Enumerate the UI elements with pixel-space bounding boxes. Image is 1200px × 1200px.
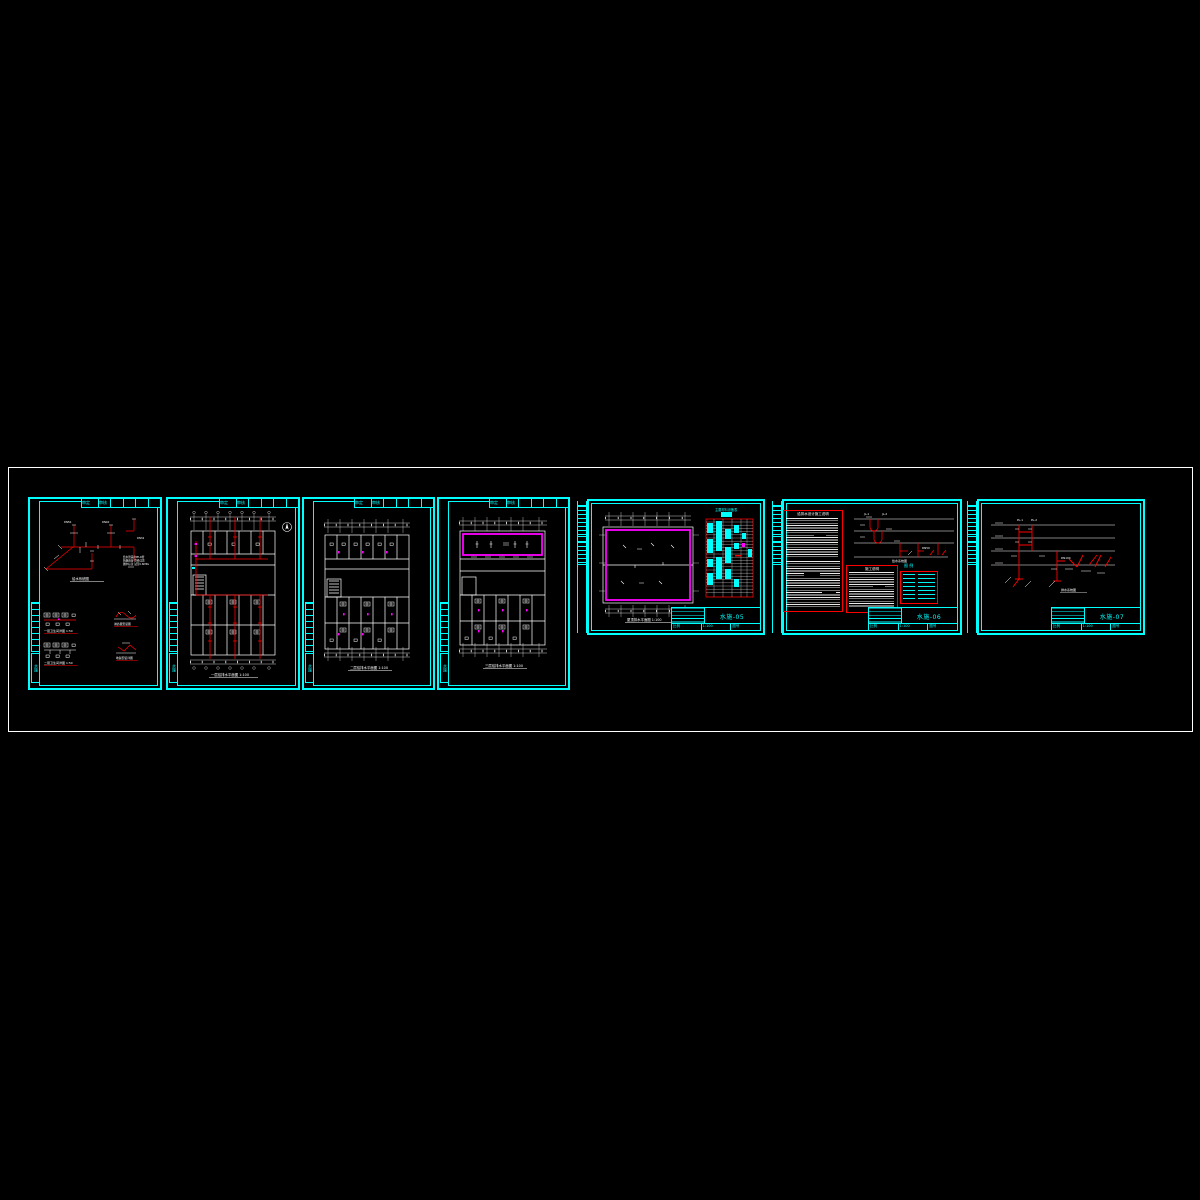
svg-text:DN50: DN50	[64, 520, 72, 524]
signoff-cell: 审定	[490, 499, 506, 507]
sheet-07-side-table	[967, 505, 977, 537]
scale-value: 1:100	[898, 624, 928, 630]
sheet-03-signoff-strip: 审定 审核	[354, 498, 434, 508]
signoff-cell	[110, 499, 122, 507]
signoff-cell	[123, 499, 135, 507]
svg-text:二层卫生间详图 1:50: 二层卫生间详图 1:50	[44, 660, 73, 665]
sheet-03-drawing: 二层给排水平面图 1:100	[302, 497, 435, 690]
sheet-07-title-block: 水施-07 比例 1:100 图号	[1051, 607, 1141, 631]
signoff-cell	[543, 499, 555, 507]
sheet-05-side-table	[577, 541, 587, 565]
svg-text:JL-1: JL-1	[863, 512, 869, 516]
sheet-03[interactable]: 审定 审核 水施	[302, 497, 435, 690]
table-title: 主要材料设备表	[715, 507, 738, 512]
signoff-cell	[248, 499, 260, 507]
svg-text:DN50: DN50	[922, 546, 930, 550]
svg-text:DN100: DN100	[1061, 556, 1071, 560]
signoff-cell	[273, 499, 285, 507]
signoff-cell: 审定	[355, 499, 371, 507]
sheet-01-drawing: DN50 DN40 DN32 给水管采用PP-R管 热熔连接 管径详见 图中标注…	[28, 497, 162, 690]
svg-text:JL-2: JL-2	[881, 512, 887, 516]
title-block-rows	[672, 608, 705, 624]
plan-caption: 二层给排水平面图 1:100	[350, 665, 388, 670]
signoff-cell: 审定	[220, 499, 236, 507]
signoff-cell	[261, 499, 273, 507]
title-block-bottom: 比例 1:100 图号	[869, 623, 957, 630]
sheet-06-side-table	[772, 505, 782, 537]
title-block-rows	[869, 608, 902, 624]
sheet-05[interactable]: 屋顶排水平面图 1:100 主要材料设备表 水施-05	[575, 499, 765, 635]
signoff-cell: 审定	[82, 499, 98, 507]
scale-label: 比例	[672, 624, 701, 630]
no-label: 图号	[927, 624, 957, 630]
title-block-bottom: 比例 1:100 图号	[672, 623, 760, 630]
sheet-number: 水施-07	[1084, 608, 1140, 624]
sheet-01[interactable]: 审定 审核 水施 DN50 DN40 DN32 给水管采	[28, 497, 162, 690]
scale-value: 1:100	[701, 624, 731, 630]
diagram-caption: 给水系统图	[72, 576, 90, 581]
svg-text:地漏安装详图: 地漏安装详图	[116, 656, 133, 660]
scale-label: 比例	[1052, 624, 1081, 630]
svg-text:DN32: DN32	[137, 536, 145, 540]
riser-caption: 给水系统图	[892, 558, 907, 563]
sheet-06[interactable]: 给排水设计施工说明 施工说明 图 例	[770, 499, 962, 635]
sheet-02-drawing: 一层给排水平面图 1:100	[166, 497, 300, 690]
signoff-cell: 审核	[236, 499, 248, 507]
sheet-07-side-table	[967, 541, 977, 565]
scale-label: 比例	[869, 624, 898, 630]
signoff-cell: 审核	[371, 499, 383, 507]
signoff-cell	[531, 499, 543, 507]
signoff-cell	[286, 499, 298, 507]
signoff-cell	[148, 499, 160, 507]
diagram-caption: 排水系统图	[1061, 587, 1076, 592]
signoff-cell	[408, 499, 420, 507]
svg-text:一层卫生间详图 1:50: 一层卫生间详图 1:50	[44, 628, 73, 633]
sheet-01-signoff-strip: 审定 审核	[81, 498, 161, 508]
svg-text:淋浴器安装图: 淋浴器安装图	[114, 622, 131, 626]
sheet-04-drawing: 三层给排水平面图 1:100	[437, 497, 570, 690]
sheet-02[interactable]: 审定 审核 水施	[166, 497, 300, 690]
sheet-04[interactable]: 审定 审核 水施	[437, 497, 570, 690]
signoff-cell	[383, 499, 395, 507]
svg-text:图中标注 试压0.6MPa: 图中标注 试压0.6MPa	[123, 562, 149, 566]
signoff-cell	[135, 499, 147, 507]
no-label: 图号	[730, 624, 760, 630]
roof-highlight	[463, 534, 542, 555]
title-block-bottom: 比例 1:100 图号	[1052, 623, 1140, 630]
signoff-cell: 审核	[98, 499, 110, 507]
svg-text:给水管采用PP-R管: 给水管采用PP-R管	[123, 555, 145, 559]
plan-caption: 三层给排水平面图 1:100	[485, 663, 523, 668]
plan-caption: 屋顶排水平面图 1:100	[627, 617, 662, 622]
sheet-number: 水施-05	[704, 608, 760, 624]
sheet-02-signoff-strip: 审定 审核	[219, 498, 299, 508]
sheet-06-side-table	[772, 541, 782, 565]
signoff-cell	[556, 499, 568, 507]
sheet-07[interactable]: PL-1 PL-2 DN100 排水系统图 水施-07 比例 1:100 图号	[965, 499, 1145, 635]
signoff-cell	[396, 499, 408, 507]
sheet-05-title-block: 水施-05 比例 1:100 图号	[671, 607, 761, 631]
svg-text:DN40: DN40	[102, 520, 110, 524]
title-block-rows	[1052, 608, 1085, 624]
no-label: 图号	[1110, 624, 1140, 630]
svg-text:热熔连接 管径详见: 热熔连接 管径详见	[123, 559, 145, 563]
plan-caption: 一层给排水平面图 1:100	[211, 672, 249, 677]
scale-value: 1:100	[1081, 624, 1111, 630]
signoff-cell	[421, 499, 433, 507]
svg-text:PL-2: PL-2	[1031, 518, 1037, 522]
cad-model-space: 审定 审核 水施 DN50 DN40 DN32 给水管采	[0, 0, 1200, 1200]
signoff-cell: 审核	[506, 499, 518, 507]
sheet-06-title-block: 水施-06 比例 1:100 图号	[868, 607, 958, 631]
svg-text:PL-1: PL-1	[1017, 518, 1023, 522]
sheet-05-side-table	[577, 505, 587, 537]
sheet-number: 水施-06	[901, 608, 957, 624]
sheet-04-signoff-strip: 审定 审核	[489, 498, 569, 508]
signoff-cell	[518, 499, 530, 507]
